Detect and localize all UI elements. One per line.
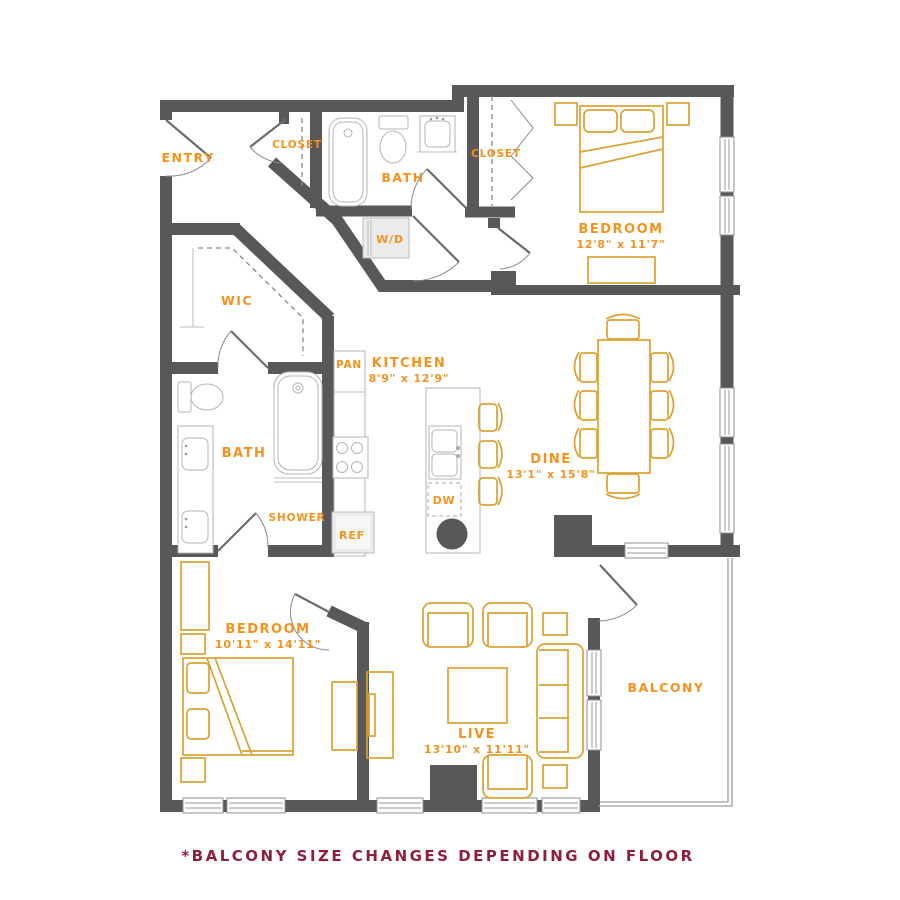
window [542, 798, 580, 813]
side-table [543, 613, 567, 635]
bedroom2-living-wall [329, 611, 367, 810]
bench [588, 257, 655, 283]
window [720, 388, 734, 437]
pantry-label: PAN [336, 359, 362, 371]
armchair [483, 755, 532, 798]
bedroom1-label: BEDROOM [578, 222, 663, 237]
dining-chair [651, 352, 674, 382]
master-bath-door [218, 513, 268, 551]
living-column [430, 765, 477, 806]
stove [333, 437, 368, 478]
entry-door [166, 120, 211, 176]
dining-chair [606, 315, 640, 340]
bedroom-closet-label: CLOSET [471, 148, 521, 160]
wic-label: WIC [221, 293, 253, 308]
floor-plan-page: ENTRY CLOSET BATH W/D CLOSET BEDROOM 12'… [0, 0, 900, 900]
dresser [332, 682, 357, 750]
dining-corner-column [554, 515, 592, 557]
dining-label: DINE [530, 452, 571, 467]
window [482, 798, 537, 813]
kitchen-label: KITCHEN [372, 356, 446, 371]
toilet [379, 116, 408, 163]
bar-stools [479, 403, 502, 505]
top-wall [160, 91, 734, 106]
footnote-text: *BALCONY SIZE CHANGES DEPENDING ON FLOOR [181, 847, 694, 865]
wic-shelf [180, 248, 204, 327]
window [625, 543, 668, 558]
armchair [483, 603, 532, 647]
fridge-label: REF [339, 529, 365, 542]
laundry-label: W/D [376, 233, 404, 246]
bar-stool [479, 477, 502, 505]
bathtub [329, 118, 367, 206]
entry-closet-label: CLOSET [272, 139, 322, 151]
bedroom2-furniture [181, 562, 357, 782]
coffee-table [448, 668, 507, 723]
master-bath-label: BATH [222, 446, 267, 461]
sink [417, 116, 457, 152]
sofa [537, 644, 583, 758]
bar-stool [479, 440, 502, 468]
toilet [178, 382, 223, 412]
shower-label: SHOWER [269, 512, 326, 524]
window [587, 700, 601, 750]
window [720, 137, 734, 192]
kitchen-island [426, 388, 480, 553]
double-vanity [178, 426, 213, 553]
window [720, 444, 734, 533]
bed [580, 106, 663, 212]
living-label: LIVE [458, 727, 496, 742]
balcony-door [598, 565, 637, 621]
dining-chair [575, 428, 598, 458]
nightstand [181, 758, 205, 782]
nightstand [667, 103, 689, 125]
living-size: 13'10" x 11'11" [424, 743, 530, 756]
island-round-table [437, 519, 468, 550]
bedroom2-size: 10'11" x 14'11" [215, 638, 321, 651]
kitchen-size: 8'9" x 12'9" [369, 372, 450, 385]
nightstand [555, 103, 577, 125]
dishwasher-label: DW [433, 494, 456, 507]
nightstand [181, 634, 205, 654]
bedroom2-label: BEDROOM [225, 622, 310, 637]
wic-door [218, 331, 268, 368]
balcony-label: BALCONY [628, 680, 705, 695]
dining-chair [651, 428, 674, 458]
window [587, 650, 601, 696]
bedroom1-door [498, 228, 530, 269]
window [227, 798, 285, 813]
dining-chair [606, 474, 640, 499]
floor-plan-drawing: ENTRY CLOSET BATH W/D CLOSET BEDROOM 12'… [0, 0, 900, 900]
room-labels: ENTRY CLOSET BATH W/D CLOSET BEDROOM 12'… [161, 139, 704, 865]
window [720, 196, 734, 235]
bed [183, 658, 293, 755]
dining-size: 13'1" x 15'8" [506, 468, 595, 481]
dining-table [598, 340, 650, 473]
dining-chair [575, 390, 598, 420]
laundry-door [413, 216, 459, 281]
bar-stool [479, 403, 502, 431]
bedroom1-size: 12'8" x 11'7" [576, 238, 665, 251]
hall-bath-label: BATH [381, 170, 424, 185]
bedroom1-furniture [555, 103, 689, 283]
tv-console [367, 672, 393, 758]
window [377, 798, 423, 813]
dining-chair [575, 352, 598, 382]
window [183, 798, 223, 813]
dining-chair [651, 390, 674, 420]
entry-label: ENTRY [161, 150, 214, 165]
shower [274, 372, 322, 482]
side-table [543, 765, 567, 788]
armchair [423, 603, 473, 647]
dresser [181, 562, 209, 630]
